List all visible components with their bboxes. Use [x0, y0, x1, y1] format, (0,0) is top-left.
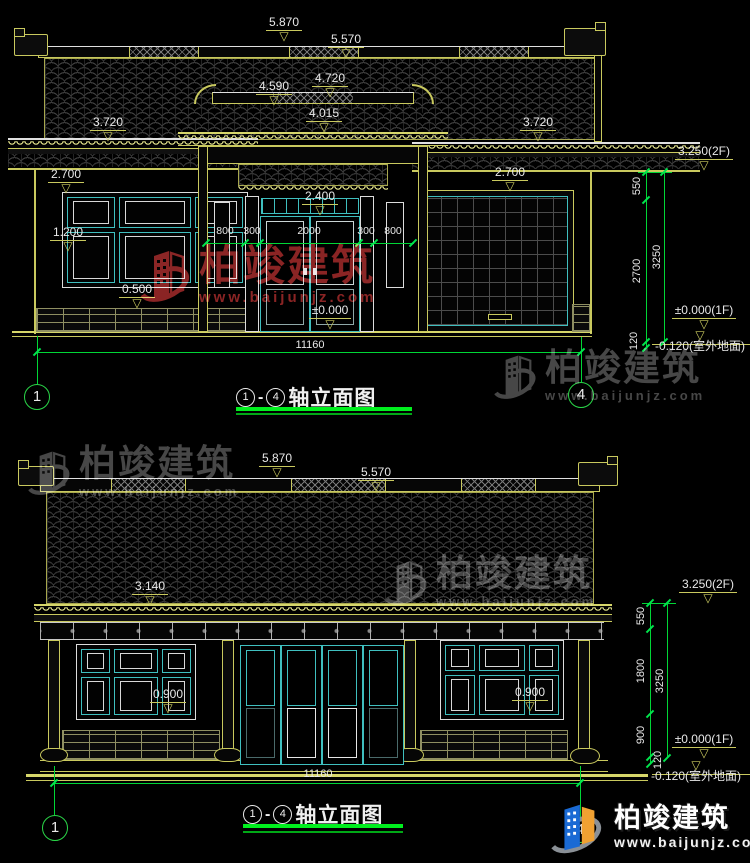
level-sill-right: 0.900 — [508, 686, 552, 711]
cad-canvas: 800 300 2000 300 800 5.870 5.570 4.720 4… — [0, 0, 750, 863]
total-width-label: 11160 — [295, 768, 341, 780]
pane-inner — [125, 201, 185, 224]
level-text: ±0.000 — [309, 304, 352, 319]
eave-fascia — [34, 614, 612, 622]
level-text: 5.570 — [328, 33, 364, 48]
gate-post-right — [418, 146, 428, 332]
level-lintel-right: 2.700 — [488, 166, 532, 191]
total-dim-line — [54, 783, 581, 784]
level-text: 4.590 — [256, 80, 292, 95]
level-text: 3.720 — [520, 116, 556, 131]
eave-trim — [34, 607, 612, 614]
gate-post-left — [198, 146, 208, 332]
level-text: 5.870 — [266, 16, 302, 31]
title-dash: - — [258, 389, 263, 406]
door-frame-left — [245, 196, 259, 332]
level-eave-left: 3.720 — [86, 116, 130, 141]
level-floor: ±0.000 — [302, 304, 358, 329]
level-text: 5.870 — [259, 452, 295, 467]
dim-label-2000: 2000 — [294, 225, 324, 237]
level-door-head: 2.400 — [298, 190, 342, 215]
chain-label-3250: 3250 — [654, 669, 666, 693]
ground-line-2 — [12, 336, 592, 337]
level-2f: 3.250(2F) — [660, 145, 748, 170]
eave-right — [412, 142, 700, 172]
ridge-ornament-hatch — [111, 479, 186, 491]
chain-label-2700: 2700 — [631, 259, 643, 283]
door-handle — [313, 268, 317, 275]
dim-label-800: 800 — [210, 225, 240, 237]
gate-canopy-tiles — [238, 164, 388, 186]
level-text: 0.900 — [512, 686, 548, 701]
column-base — [214, 748, 242, 762]
level-text: ±0.000(1F) — [672, 733, 737, 748]
window-pane — [479, 645, 524, 671]
level-text: -0.120(室外地面) — [655, 339, 745, 353]
level-text: 2.700 — [48, 168, 84, 183]
footer-logo-text: 柏竣建筑 www.baijunjz.com — [614, 804, 750, 850]
level-1f: ±0.000(1F) — [660, 304, 748, 329]
ridge-end-ornament — [18, 466, 54, 486]
garage-door — [424, 196, 568, 326]
level-gate-eave: 4.015 — [302, 107, 346, 132]
column-base — [40, 748, 68, 762]
level-outdoor-ground: -0.120(室外地面) — [648, 330, 750, 353]
footer-logo-brand: 柏竣建筑 — [614, 804, 750, 834]
window-pane — [81, 649, 110, 673]
main-ridge-band — [38, 46, 598, 58]
footer-logo: 柏竣建筑 www.baijunjz.com — [548, 798, 750, 856]
window-pane — [119, 197, 191, 228]
pane-inner — [535, 649, 553, 667]
footer-logo-url: www.baijunjz.com — [614, 834, 750, 850]
brick-base-left — [62, 730, 220, 760]
pane-inner — [451, 679, 469, 711]
ridge-ornament-hatch — [129, 47, 199, 57]
level-main-ridge: 5.870 — [255, 452, 299, 477]
window-pane — [445, 645, 475, 671]
level-ridge-step: 5.570 — [354, 466, 398, 491]
column-base — [570, 748, 600, 764]
pane-inner — [125, 236, 185, 279]
ridge-ornament-hatch — [459, 47, 529, 57]
level-eave-right: 3.720 — [516, 116, 560, 141]
window-pane — [529, 645, 559, 671]
column — [578, 640, 590, 750]
level-gate-finial: 4.720 — [308, 72, 352, 97]
eave-line — [178, 132, 448, 134]
level-text: ±0.000(1F) — [672, 304, 737, 319]
chain-label-120: 120 — [628, 332, 640, 350]
axis-extension-left — [54, 766, 55, 815]
gate-side-panel-right — [386, 202, 404, 288]
chain-label-900: 900 — [635, 726, 647, 744]
ground-line-2 — [26, 780, 648, 781]
level-ridge-step: 5.570 — [324, 33, 368, 58]
window-pane — [119, 232, 191, 283]
level-sill-left: 0.900 — [146, 688, 190, 713]
level-text: 1.200 — [50, 226, 86, 241]
gate-eave — [178, 132, 448, 146]
eave-tile-strip — [412, 157, 700, 169]
level-gate-ridge: 4.590 — [252, 80, 296, 105]
title-axis-circle-1: 1 — [236, 388, 255, 407]
window-column — [445, 645, 475, 715]
eave-line — [34, 604, 612, 606]
eave-line — [412, 142, 700, 144]
gate-dim-line — [206, 243, 414, 244]
level-1f: ±0.000(1F) — [660, 733, 748, 758]
column — [48, 640, 60, 750]
gate-side-panel-left — [214, 202, 230, 288]
eave-trim — [412, 145, 700, 152]
total-dim-line — [37, 352, 582, 353]
eave-trim — [178, 135, 448, 142]
footer-logo-building-icon — [548, 798, 606, 856]
pane-inner — [485, 649, 518, 667]
pane-inner — [87, 653, 104, 669]
chain-label-1800: 1800 — [635, 659, 647, 683]
pane-inner — [73, 201, 109, 224]
total-width-label: 11160 — [287, 339, 333, 351]
axis-bubble-4: 4 — [568, 382, 594, 408]
brick-base-right — [572, 304, 590, 332]
rear-door-leaf — [240, 645, 281, 765]
dim-label-300: 300 — [351, 225, 381, 237]
window-column — [119, 197, 191, 283]
level-text: 3.250(2F) — [675, 145, 733, 160]
chain-label-3250: 3250 — [651, 245, 663, 269]
chain-label-550: 550 — [631, 177, 643, 195]
level-text: 4.015 — [306, 107, 342, 122]
dim-label-800: 800 — [378, 225, 408, 237]
level-text: 2.400 — [302, 190, 338, 205]
window-pane — [445, 675, 475, 715]
pane-inner — [120, 653, 152, 669]
rear-door-leaf — [363, 645, 404, 765]
ridge-end-ornament — [578, 462, 618, 486]
window-column — [81, 649, 110, 715]
level-text: -0.120(室外地面) — [651, 769, 741, 783]
title-underline-2 — [236, 413, 412, 415]
window-pane — [67, 197, 115, 228]
level-main-ridge: 5.870 — [262, 16, 306, 41]
gate-beam — [200, 146, 426, 164]
title-axis-circle-4: 4 — [266, 388, 285, 407]
chain-label-550: 550 — [635, 607, 647, 625]
brick-base-right — [420, 730, 568, 760]
door-handle — [303, 268, 307, 275]
title-underline — [236, 407, 412, 411]
title-axis-circle-1: 1 — [243, 805, 262, 824]
level-lintel-left: 2.700 — [44, 168, 88, 193]
axis-bubble-1: 1 — [24, 384, 50, 410]
wall-edge-right — [590, 172, 592, 334]
axis-bubble-1: 1 — [42, 815, 68, 841]
level-text: 5.570 — [358, 466, 394, 481]
main-ridge-band — [40, 478, 600, 492]
level-text: 3.720 — [90, 116, 126, 131]
brick-base-left — [36, 308, 248, 332]
title-underline-2 — [243, 831, 403, 833]
level-sill-left: 1.200 — [46, 226, 90, 251]
gable-edge-board — [594, 46, 602, 142]
level-outdoor-ground: -0.120(室外地面) — [644, 760, 748, 783]
eave-band — [34, 604, 612, 622]
door-frame-right — [360, 196, 374, 332]
level-text: 0.500 — [119, 283, 155, 298]
title-underline — [243, 824, 403, 828]
ridge-ornament-hatch — [461, 479, 536, 491]
column — [404, 640, 416, 750]
ridge-end-ornament — [14, 34, 48, 56]
pane-inner — [168, 653, 185, 669]
level-2f: 3.250(2F) — [664, 578, 750, 603]
level-text: 0.900 — [150, 688, 186, 703]
level-eave: 3.140 — [128, 580, 172, 605]
axis-extension-right — [581, 337, 582, 382]
window-pane — [81, 677, 110, 715]
ridge-end-ornament — [564, 28, 606, 56]
level-text: 2.700 — [492, 166, 528, 181]
column — [222, 640, 234, 750]
level-text: 3.250(2F) — [679, 578, 737, 593]
level-base-left: 0.500 — [115, 283, 159, 308]
title-axis-circle-4: 4 — [273, 805, 292, 824]
rear-door-leaf — [322, 645, 363, 765]
garage-handle — [488, 314, 512, 320]
dim-label-300: 300 — [237, 225, 267, 237]
level-text: 3.140 — [132, 580, 168, 595]
pane-inner — [87, 681, 104, 711]
window-pane — [114, 649, 158, 673]
rear-door-leaf — [281, 645, 322, 765]
title-dash: - — [265, 806, 270, 823]
pane-inner — [451, 649, 469, 667]
axis-extension-left — [37, 336, 38, 384]
level-text: 4.720 — [312, 72, 348, 87]
window-pane — [162, 649, 191, 673]
lattice-frieze-band — [40, 622, 604, 640]
